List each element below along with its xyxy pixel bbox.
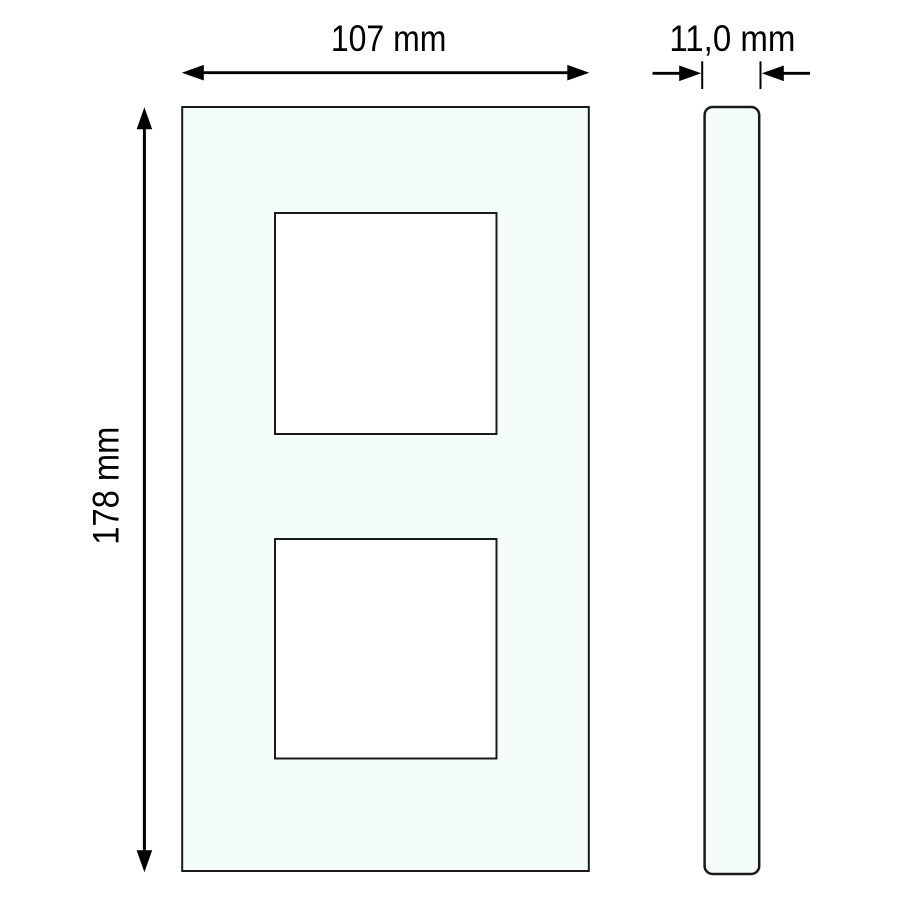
svg-text:107 mm: 107 mm [331,18,447,59]
svg-text:178 mm: 178 mm [86,427,127,545]
svg-text:11,0 mm: 11,0 mm [669,18,795,59]
